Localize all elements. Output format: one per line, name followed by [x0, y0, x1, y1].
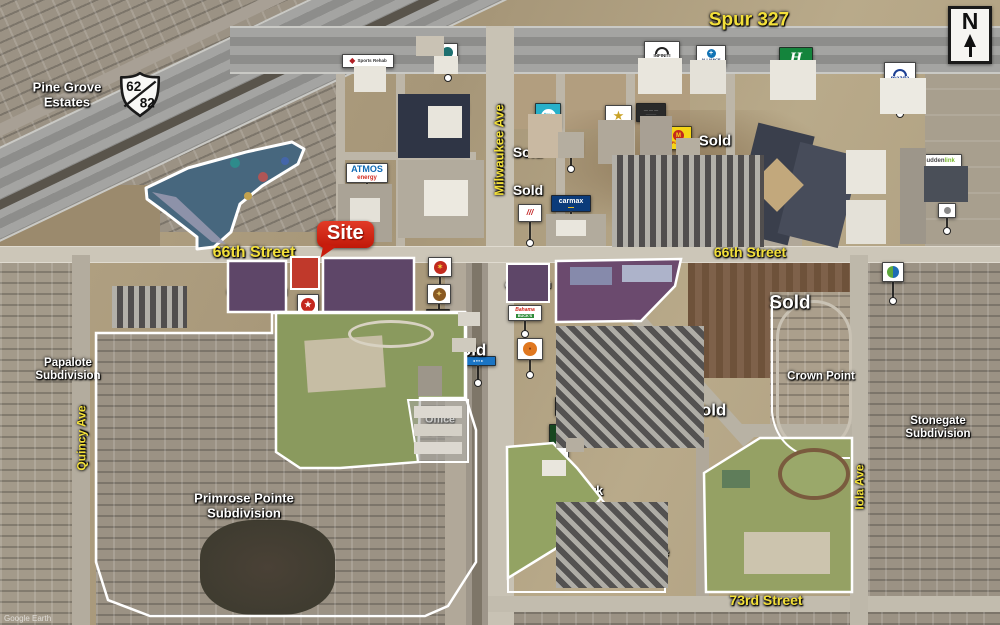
- warehouse: [846, 150, 886, 194]
- building: [458, 312, 480, 326]
- dealership-building: [880, 78, 926, 114]
- site-callout: Site: [317, 221, 374, 248]
- future-office-retail-parcel: [556, 259, 681, 322]
- future-commercial-small-parcel: [507, 264, 549, 302]
- dealership-building: [638, 58, 682, 94]
- compass-n-label: N: [962, 10, 979, 33]
- site-parcel: [291, 257, 319, 289]
- shield-route-top: 62: [126, 79, 141, 94]
- site-callout-label: Site: [327, 222, 364, 244]
- tennis-courts: [722, 470, 750, 488]
- building: [434, 56, 458, 74]
- running-track: [778, 448, 850, 500]
- office-building: [414, 442, 462, 454]
- hotel-building: [770, 60, 816, 100]
- tuscany-apartments-buildings: [556, 502, 668, 588]
- building: [690, 60, 726, 94]
- future-commercial-west-parcel: [228, 261, 286, 312]
- office-building: [414, 406, 462, 418]
- icon-apartments-south-buildings: [556, 326, 704, 448]
- fore-golf-site: [146, 142, 304, 249]
- north-compass: N: [948, 6, 992, 64]
- building: [428, 106, 462, 138]
- building: [418, 366, 442, 396]
- restaurant-building: [542, 460, 566, 476]
- aerial-map: ✚4ORE!◆Sports Rehab★Lone Star State Bank…: [0, 0, 1000, 625]
- building: [416, 36, 444, 56]
- building: [924, 166, 968, 202]
- shield-route-bottom: 82: [140, 96, 155, 111]
- office-building: [414, 424, 462, 436]
- building: [452, 338, 476, 352]
- building: [350, 198, 380, 222]
- icon-apartments-north-buildings: [612, 155, 764, 247]
- hotel-building: [528, 114, 562, 158]
- north-arrow-stem: [969, 47, 972, 57]
- us-highway-62-82-shield: 62 82: [116, 70, 164, 118]
- building: [556, 220, 586, 236]
- building: [424, 180, 468, 216]
- building: [900, 148, 926, 244]
- map-attribution: Google Earth: [4, 614, 51, 623]
- crown-point-outline: [772, 298, 850, 458]
- school-loop-drive: [348, 320, 434, 348]
- hotel-building: [558, 132, 584, 158]
- school-building: [744, 532, 830, 574]
- north-arrow-icon: [964, 34, 976, 47]
- building: [566, 438, 584, 452]
- building: [354, 66, 386, 92]
- warehouse: [846, 200, 886, 244]
- future-commercial-mid-parcel: [323, 258, 414, 313]
